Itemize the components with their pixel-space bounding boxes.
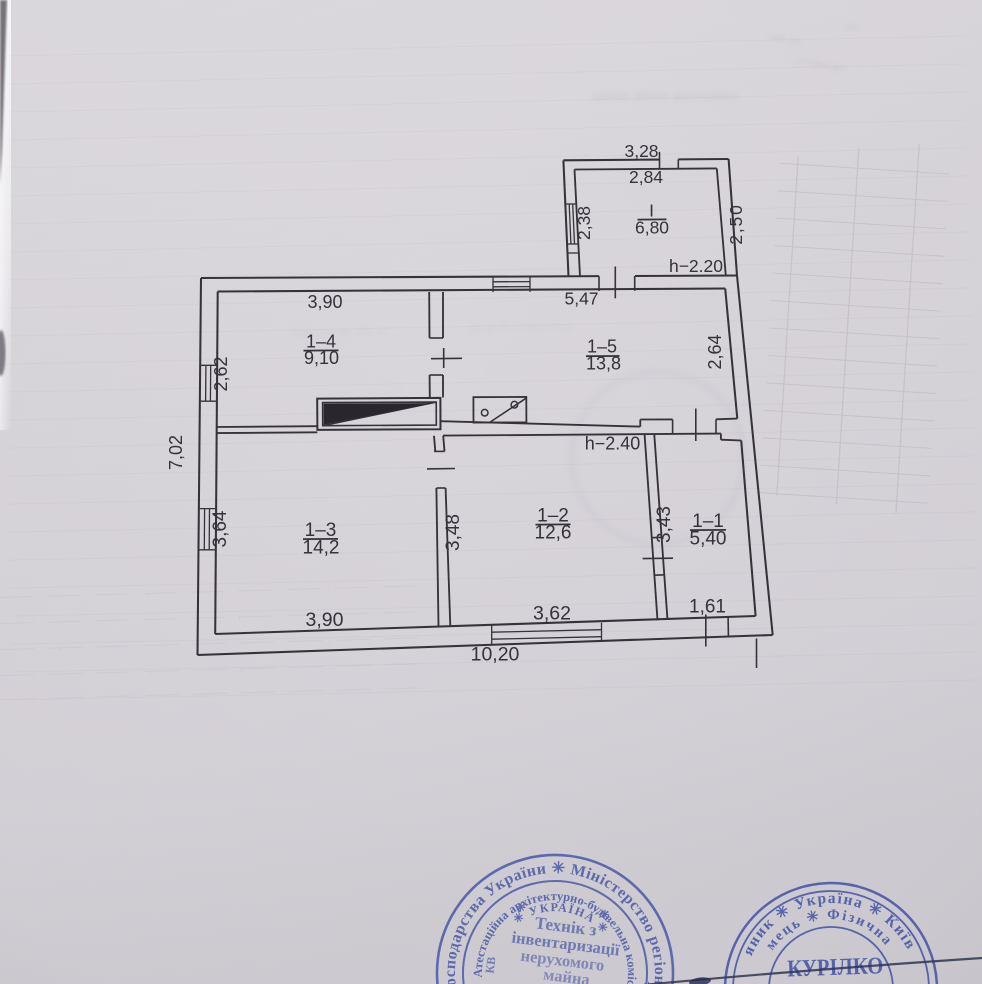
svg-text:h−2.20: h−2.20 <box>669 256 723 276</box>
svg-text:КВ: КВ <box>483 956 499 974</box>
svg-text:3,90: 3,90 <box>306 609 344 631</box>
svg-text:Будства по ЛІТ А: Будства по ЛІТ А <box>290 325 384 339</box>
svg-text:2,38: 2,38 <box>574 206 594 240</box>
svg-text:2,62: 2,62 <box>211 356 231 391</box>
svg-text:шиних вбиєп ввлторвіка: шиних вбиєп ввлторвіка <box>592 88 738 103</box>
svg-text:1,61: 1,61 <box>689 597 726 618</box>
svg-text:3,28: 3,28 <box>624 141 658 161</box>
svg-text:3,90: 3,90 <box>307 292 342 312</box>
svg-text:10,20: 10,20 <box>471 644 520 666</box>
svg-text:h−2.40: h−2.40 <box>585 434 641 454</box>
svg-text:13,8: 13,8 <box>586 354 621 374</box>
svg-text:рв д 25,3 09,8 79,1: рв д 25,3 09,8 79,1 <box>470 321 574 335</box>
svg-text:5,47: 5,47 <box>564 289 598 309</box>
svg-text:3,43: 3,43 <box>654 506 675 543</box>
svg-text:✳: ✳ <box>515 900 527 915</box>
svg-text:5,40: 5,40 <box>690 529 727 550</box>
svg-text:2,50: 2,50 <box>726 203 746 244</box>
svg-text:3,62: 3,62 <box>533 603 571 625</box>
svg-text:12,6: 12,6 <box>535 523 572 544</box>
svg-text:2,64: 2,64 <box>705 334 725 369</box>
svg-text:кіл: кіл <box>845 21 859 33</box>
svg-text:9,10: 9,10 <box>304 348 339 368</box>
svg-text:3,64: 3,64 <box>210 510 231 547</box>
svg-text:✳: ✳ <box>599 907 611 922</box>
svg-text:6,80: 6,80 <box>635 218 669 238</box>
svg-text:14,2: 14,2 <box>303 538 340 559</box>
svg-text:3,48: 3,48 <box>443 514 464 551</box>
svg-text:2,84: 2,84 <box>629 167 663 187</box>
svg-text:7,02: 7,02 <box>166 435 186 470</box>
